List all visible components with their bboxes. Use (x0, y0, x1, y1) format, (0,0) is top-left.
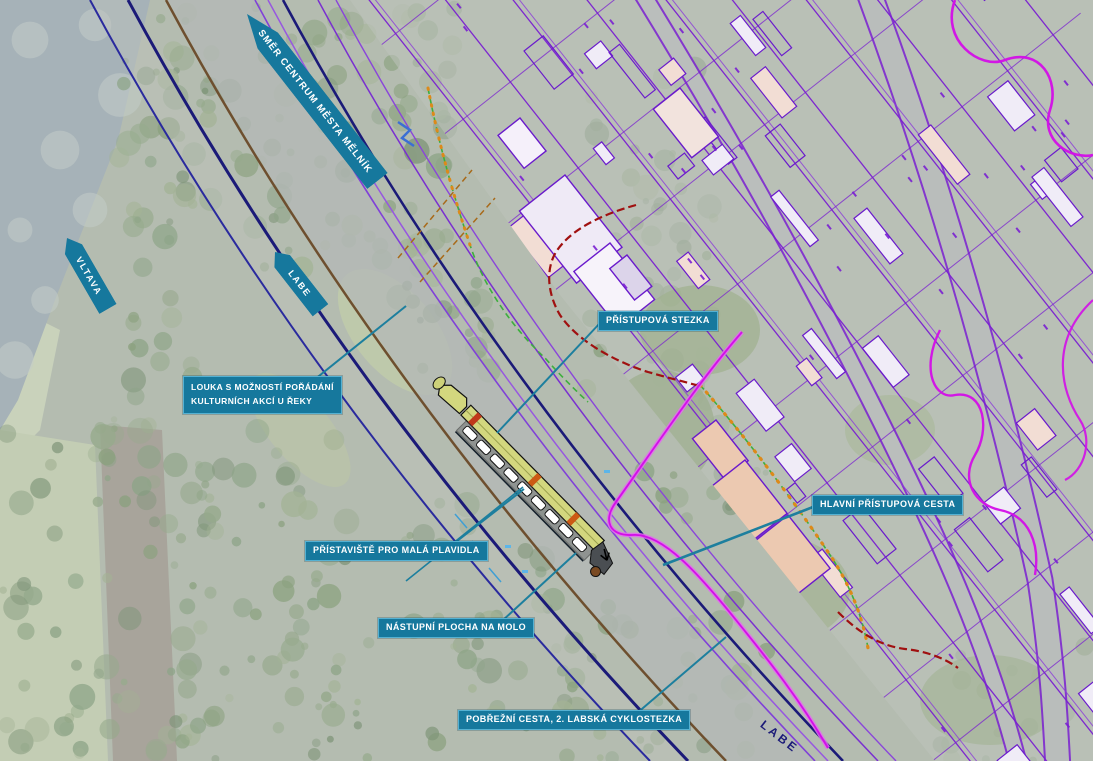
callout-text-line1: LOUKA S MOŽNOSTÍ POŘÁDÁNÍ (191, 380, 334, 394)
callout-text-line2: KULTURNÍCH AKCÍ U ŘEKY (191, 394, 334, 408)
map-canvas (0, 0, 1093, 761)
site-plan-map: LOUKA S MOŽNOSTÍ POŘÁDÁNÍ KULTURNÍCH AKC… (0, 0, 1093, 761)
callout-text: NÁSTUPNÍ PLOCHA NA MOLO (386, 622, 526, 632)
callout-text: PŘÍSTUPOVÁ STEZKA (606, 315, 710, 325)
callout-access-path: PŘÍSTUPOVÁ STEZKA (598, 311, 718, 331)
callout-boarding-area: NÁSTUPNÍ PLOCHA NA MOLO (378, 618, 534, 638)
callout-small-boat-dock: PŘÍSTAVIŠTĚ PRO MALÁ PLAVIDLA (305, 541, 488, 561)
callout-main-access-road: HLAVNÍ PŘÍSTUPOVÁ CESTA (812, 495, 963, 515)
callout-meadow-events: LOUKA S MOŽNOSTÍ POŘÁDÁNÍ KULTURNÍCH AKC… (183, 376, 342, 414)
callout-text: POBŘEŽNÍ CESTA, 2. LABSKÁ CYKLOSTEZKA (466, 714, 682, 724)
callout-text: PŘÍSTAVIŠTĚ PRO MALÁ PLAVIDLA (313, 545, 480, 555)
callout-riverside-cycleway: POBŘEŽNÍ CESTA, 2. LABSKÁ CYKLOSTEZKA (458, 710, 690, 730)
callout-text: HLAVNÍ PŘÍSTUPOVÁ CESTA (820, 499, 955, 509)
